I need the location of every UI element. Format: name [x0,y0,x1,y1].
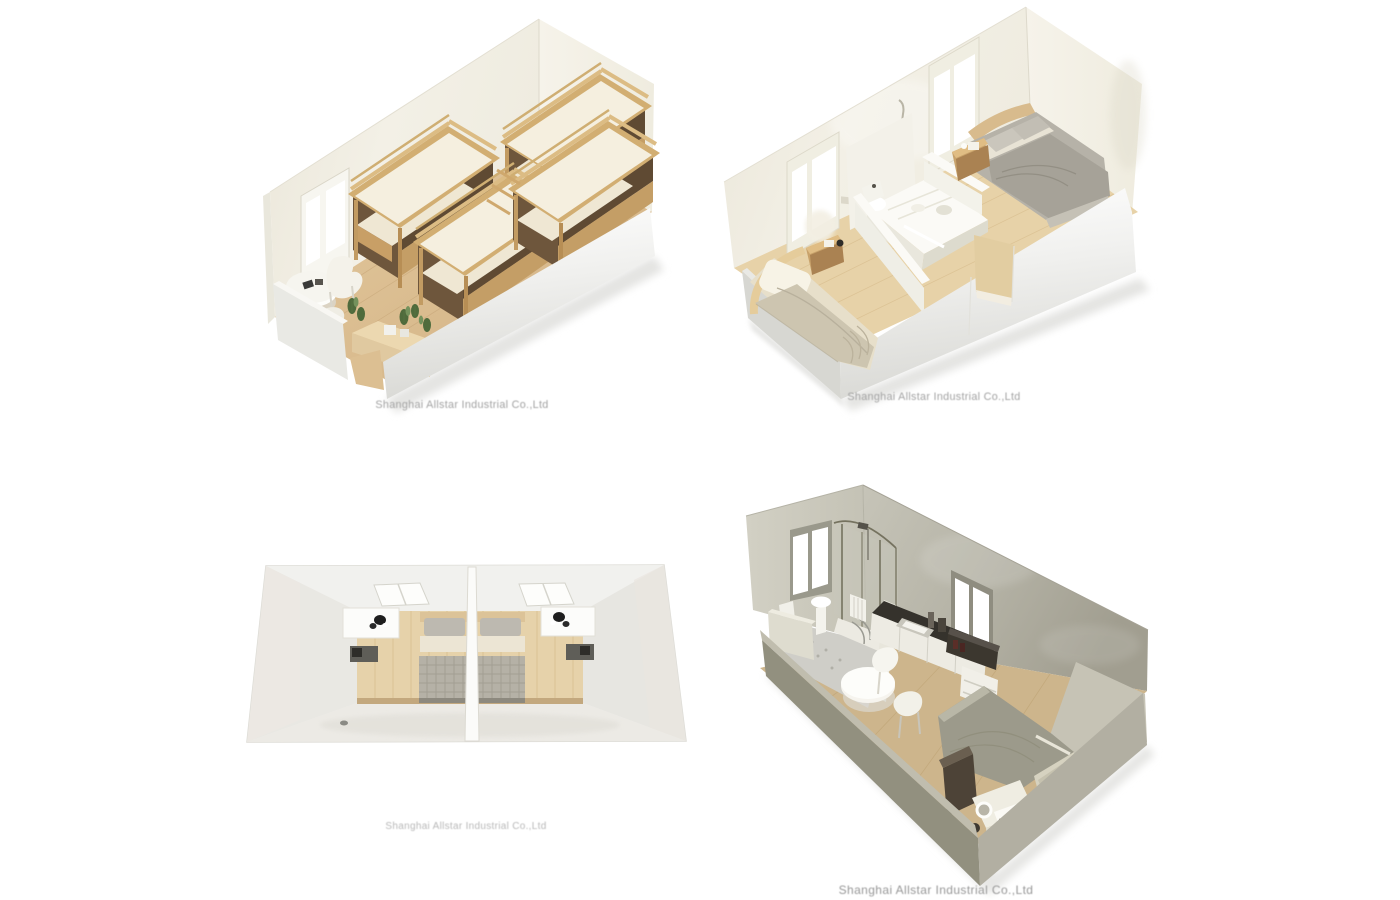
svg-text:Shanghai Allstar Industrial Co: Shanghai Allstar Industrial Co.,Ltd [385,821,546,832]
svg-text:Shanghai Allstar Industrial Co: Shanghai Allstar Industrial Co.,Ltd [375,399,548,411]
svg-text:Shanghai Allstar Industrial Co: Shanghai Allstar Industrial Co.,Ltd [839,883,1034,897]
svg-text:Shanghai Allstar Industrial Co: Shanghai Allstar Industrial Co.,Ltd [847,391,1020,403]
